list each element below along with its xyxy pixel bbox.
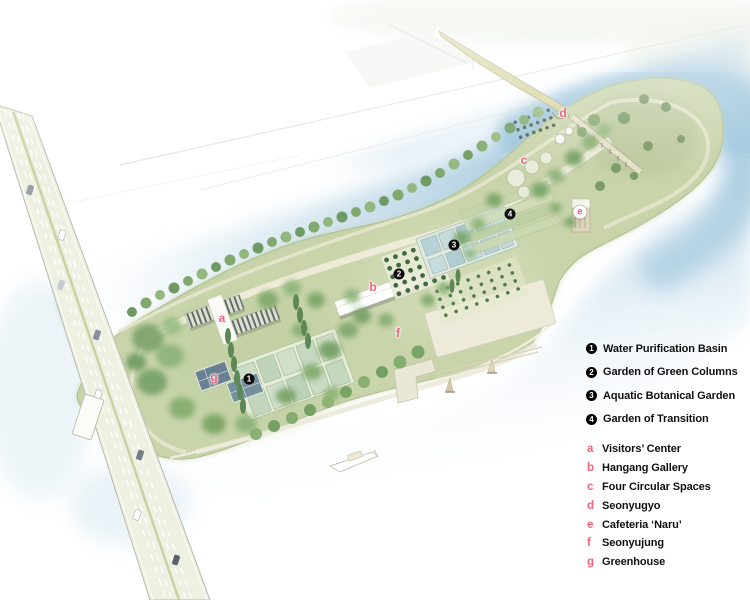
legend-label: Visitors’ Center bbox=[602, 443, 681, 455]
map-marker-3: 3 bbox=[449, 240, 460, 251]
top-haze bbox=[0, 0, 750, 170]
map-marker-d: d bbox=[559, 107, 566, 119]
legend-bullet-4-icon: 4 bbox=[586, 414, 597, 425]
legend-item: 2 Garden of Green Columns bbox=[586, 361, 738, 385]
map-marker-4: 4 bbox=[505, 209, 516, 220]
legend-label: Garden of Transition bbox=[603, 413, 709, 425]
legend-item: 1 Water Purification Basin bbox=[586, 337, 738, 361]
legend-item: f Seonyujung bbox=[587, 534, 711, 553]
legend-item: 3 Aquatic Botanical Garden bbox=[586, 384, 738, 408]
legend-label: Four Circular Spaces bbox=[602, 481, 711, 493]
map-marker-a: a bbox=[219, 312, 226, 324]
map-marker-f: f bbox=[396, 327, 400, 339]
legend-key-a: a bbox=[587, 443, 602, 455]
legend-item: c Four Circular Spaces bbox=[587, 478, 711, 497]
legend-label: Cafeteria ‘Naru’ bbox=[602, 519, 682, 531]
legend-item: a Visitors’ Center bbox=[587, 440, 711, 459]
legend-label: Water Purification Basin bbox=[603, 343, 727, 355]
legend-key-d: d bbox=[587, 500, 602, 512]
map-marker-c: c bbox=[521, 154, 528, 166]
legend-key-b: b bbox=[587, 462, 602, 474]
legend-bullet-2-icon: 2 bbox=[586, 367, 597, 378]
legend-label: Seonyugyo bbox=[602, 500, 660, 512]
legend-label: Aquatic Botanical Garden bbox=[603, 390, 735, 402]
legend-label: Hangang Gallery bbox=[602, 462, 688, 474]
legend-label: Greenhouse bbox=[602, 556, 665, 568]
map-marker-e: e bbox=[574, 206, 587, 219]
legend-lettered: a Visitors’ Center b Hangang Gallery c F… bbox=[587, 440, 711, 572]
legend-bullet-1-icon: 1 bbox=[586, 343, 597, 354]
map-marker-g: g bbox=[210, 371, 217, 383]
legend-key-e: e bbox=[587, 519, 602, 531]
map-marker-b: b bbox=[369, 281, 376, 293]
legend-key-c: c bbox=[587, 481, 602, 493]
map-marker-2: 2 bbox=[394, 269, 405, 280]
legend-label: Garden of Green Columns bbox=[603, 366, 738, 378]
legend-label: Seonyujung bbox=[602, 537, 664, 549]
map-marker-1: 1 bbox=[244, 374, 255, 385]
legend-item: d Seonyugyo bbox=[587, 496, 711, 515]
legend-item: 4 Garden of Transition bbox=[586, 408, 738, 432]
legend-numbered: 1 Water Purification Basin 2 Garden of G… bbox=[586, 337, 738, 431]
legend-item: b Hangang Gallery bbox=[587, 459, 711, 478]
legend-item: g Greenhouse bbox=[587, 553, 711, 572]
legend-key-g: g bbox=[587, 556, 602, 568]
legend-item: e Cafeteria ‘Naru’ bbox=[587, 515, 711, 534]
legend-bullet-3-icon: 3 bbox=[586, 390, 597, 401]
seonyudo-park-map-page: 1 2 3 4 a b c d e f g 1 Water Purificati… bbox=[0, 0, 750, 600]
legend-key-f: f bbox=[587, 537, 602, 549]
